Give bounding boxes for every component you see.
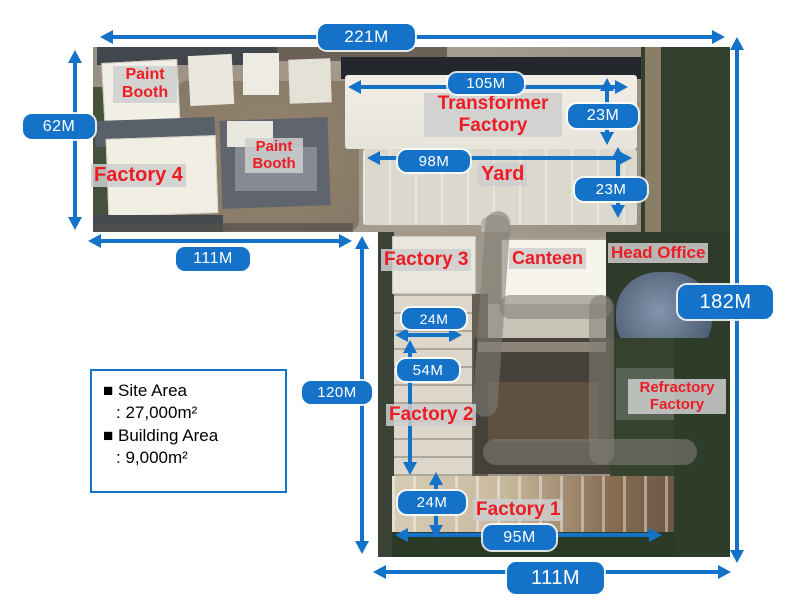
area-legend-box: ■ Site Area : 27,000m² ■ Building Area :… xyxy=(90,369,287,493)
dim-badge-factory2-length: 54M xyxy=(397,359,459,381)
label-factory-4: Factory 4 xyxy=(91,164,186,187)
dim-arrow-left-strip-width xyxy=(100,239,340,243)
site-area-label: ■ Site Area xyxy=(103,380,279,402)
label-paint-booth-1: Paint Booth xyxy=(113,66,177,103)
dim-arrow-left-strip-height xyxy=(73,62,77,218)
dim-badge-site-width-top: 221M xyxy=(318,24,415,50)
dim-badge-transformer-width: 105M xyxy=(448,73,524,94)
label-factory-2: Factory 2 xyxy=(386,404,476,426)
label-yard: Yard xyxy=(478,163,527,186)
shadow-bottom-strip xyxy=(93,223,353,232)
path-right xyxy=(645,47,661,232)
dim-badge-site-width-bottom: 111M xyxy=(507,562,604,594)
building-small-b xyxy=(243,53,279,95)
label-head-office: Head Office xyxy=(608,243,708,263)
aerial-photo-top-strip xyxy=(93,47,730,232)
dim-badge-left-strip-width: 111M xyxy=(176,247,250,271)
dim-badge-yard-width: 98M xyxy=(398,150,470,172)
dim-badge-yard-depth: 23M xyxy=(575,178,647,201)
dim-arrow-factory2-width xyxy=(407,333,450,337)
building-small-c xyxy=(288,58,332,103)
dim-badge-lower-block-height: 120M xyxy=(302,381,372,404)
building-area-value: : 9,000m² xyxy=(103,447,279,469)
label-factory-3: Factory 3 xyxy=(381,249,471,271)
dim-badge-factory1-width: 95M xyxy=(483,525,556,550)
label-paint-booth-2: Paint Booth xyxy=(245,138,303,173)
label-refractory-factory: Refractory Factory xyxy=(628,379,726,414)
building-small-a xyxy=(188,54,235,106)
label-factory-1: Factory 1 xyxy=(473,499,563,521)
site-area-value: : 27,000m² xyxy=(103,402,279,424)
dim-badge-transformer-depth: 23M xyxy=(568,104,638,128)
dim-badge-site-height-right: 182M xyxy=(678,285,773,319)
central-roof-brown xyxy=(488,382,598,442)
label-canteen: Canteen xyxy=(509,248,586,269)
watermark-bar-mid-vertical xyxy=(589,295,614,465)
building-area-label: ■ Building Area xyxy=(103,425,279,447)
factory-site-plan: 221M 62M 111M 105M 23M 98M 23M 182M 24M … xyxy=(0,0,800,600)
dim-badge-left-strip-height: 62M xyxy=(23,114,95,139)
label-transformer-factory: Transformer Factory xyxy=(424,93,562,137)
dim-badge-factory1-depth: 24M xyxy=(398,491,466,514)
dim-badge-factory2-width: 24M xyxy=(402,308,466,329)
